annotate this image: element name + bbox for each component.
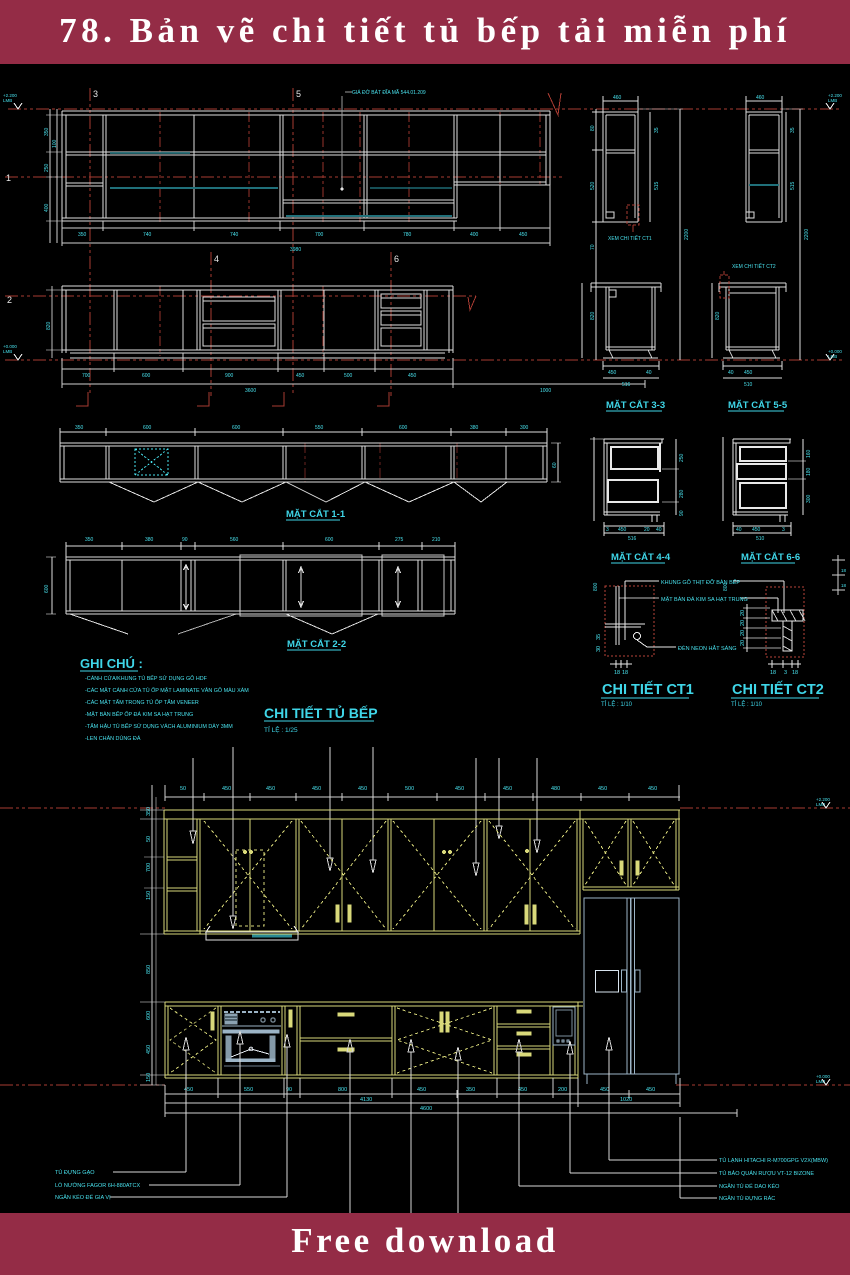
- svg-text:NGĂN TỦ ĐỂ DAO KÉO: NGĂN TỦ ĐỂ DAO KÉO: [719, 1183, 780, 1190]
- svg-text:TỈ LỆ : 1/10: TỈ LỆ : 1/10: [731, 700, 763, 708]
- svg-text:XEM CHI TIẾT CT2: XEM CHI TIẾT CT2: [732, 263, 776, 270]
- svg-text:MẶT BÀN ĐÁ KIM SA HẠT TRUNG: MẶT BÀN ĐÁ KIM SA HẠT TRUNG: [661, 596, 748, 603]
- svg-text:250: 250: [679, 453, 685, 462]
- svg-text:275: 275: [395, 537, 404, 543]
- svg-text:600: 600: [146, 1011, 152, 1020]
- svg-text:5: 5: [296, 89, 301, 99]
- svg-text:700: 700: [82, 373, 91, 379]
- svg-text:450: 450: [266, 786, 275, 792]
- svg-text:3: 3: [93, 89, 98, 99]
- svg-text:800: 800: [338, 1087, 347, 1093]
- svg-text:600: 600: [399, 425, 408, 431]
- svg-text:450: 450: [608, 370, 617, 376]
- svg-text:80: 80: [590, 125, 596, 131]
- svg-text:18: 18: [770, 670, 776, 676]
- svg-text:450: 450: [455, 786, 464, 792]
- svg-text:50: 50: [180, 786, 186, 792]
- svg-text:600: 600: [325, 537, 334, 543]
- svg-text:18: 18: [622, 670, 628, 676]
- svg-text:200: 200: [558, 1087, 567, 1093]
- svg-text:50: 50: [146, 836, 152, 842]
- svg-text:LMB: LMB: [3, 98, 12, 103]
- svg-text:MẶT CẮT 1-1: MẶT CẮT 1-1: [286, 509, 346, 520]
- svg-text:600: 600: [232, 425, 241, 431]
- svg-text:90: 90: [679, 510, 685, 516]
- svg-text:900: 900: [225, 373, 234, 379]
- svg-text:300: 300: [806, 494, 812, 503]
- svg-text:450: 450: [646, 1087, 655, 1093]
- svg-text:60: 60: [552, 462, 558, 468]
- svg-text:350: 350: [44, 127, 50, 136]
- svg-text:TỦ LẠNH HITACHI R-M700GPG V2X(: TỦ LẠNH HITACHI R-M700GPG V2X(MBW): [719, 1157, 828, 1164]
- svg-text:700: 700: [146, 863, 152, 872]
- svg-text:450: 450: [744, 370, 753, 376]
- svg-text:LMB: LMB: [3, 349, 12, 354]
- svg-text:LÒ NƯỚNG FAGOR 6H-880ATCX: LÒ NƯỚNG FAGOR 6H-880ATCX: [55, 1182, 140, 1189]
- svg-text:450: 450: [146, 1045, 152, 1054]
- svg-text:350: 350: [146, 807, 152, 816]
- svg-text:1020: 1020: [620, 1097, 632, 1103]
- svg-text:18: 18: [792, 670, 798, 676]
- svg-text:MẶT CẮT 5-5: MẶT CẮT 5-5: [728, 400, 788, 411]
- svg-text:18: 18: [614, 670, 620, 676]
- svg-text:3600: 3600: [245, 388, 256, 394]
- svg-text:-TẤM HẬU TỦ BẾP SỬ DỤNG VÁCH A: -TẤM HẬU TỦ BẾP SỬ DỤNG VÁCH ALUMINIUM D…: [85, 723, 233, 730]
- svg-text:500: 500: [405, 786, 414, 792]
- svg-text:280: 280: [679, 489, 685, 498]
- svg-text:2200: 2200: [684, 229, 690, 240]
- svg-text:460: 460: [756, 95, 765, 101]
- svg-text:820: 820: [590, 311, 596, 320]
- svg-text:GIÁ ĐỞ BÁT ĐĨA MÃ 544.01.209: GIÁ ĐỞ BÁT ĐĨA MÃ 544.01.209: [352, 89, 426, 96]
- svg-text:560: 560: [230, 537, 239, 543]
- svg-text:35: 35: [654, 127, 660, 133]
- svg-text:180: 180: [806, 467, 812, 476]
- svg-text:820: 820: [715, 311, 721, 320]
- svg-text:XEM CHI TIẾT CT1: XEM CHI TIẾT CT1: [608, 235, 652, 242]
- svg-text:20: 20: [740, 640, 746, 646]
- svg-text:2200: 2200: [804, 229, 810, 240]
- svg-text:550: 550: [315, 425, 324, 431]
- svg-text:ĐÈN NEON HẮT SÁNG: ĐÈN NEON HẮT SÁNG: [678, 644, 737, 652]
- svg-text:510: 510: [756, 536, 765, 542]
- svg-text:TỦ BẢO QUẢN RƯỢU VT-12 BIZONE: TỦ BẢO QUẢN RƯỢU VT-12 BIZONE: [719, 1170, 814, 1177]
- svg-text:40: 40: [736, 527, 742, 533]
- svg-text:160: 160: [806, 449, 812, 458]
- svg-text:MẶT CẮT 2-2: MẶT CẮT 2-2: [287, 639, 346, 650]
- svg-text:3: 3: [784, 670, 787, 676]
- svg-text:150: 150: [146, 891, 152, 900]
- svg-text:NGĂN KÉO ĐỂ GIA VỊ: NGĂN KÉO ĐỂ GIA VỊ: [55, 1194, 111, 1201]
- svg-text:400: 400: [470, 232, 479, 238]
- svg-text:NGĂN TỦ ĐỰNG RÁC: NGĂN TỦ ĐỰNG RÁC: [719, 1195, 775, 1202]
- svg-text:450: 450: [184, 1087, 193, 1093]
- svg-text:350: 350: [78, 232, 87, 238]
- svg-text:800: 800: [593, 582, 599, 591]
- svg-text:450: 450: [408, 373, 417, 379]
- svg-text:40: 40: [728, 370, 734, 376]
- svg-text:600: 600: [44, 584, 50, 593]
- svg-text:450: 450: [648, 786, 657, 792]
- svg-text:210: 210: [432, 537, 441, 543]
- svg-text:450: 450: [312, 786, 321, 792]
- svg-text:450: 450: [618, 527, 627, 533]
- svg-text:20: 20: [740, 620, 746, 626]
- svg-text:LMB: LMB: [828, 98, 837, 103]
- svg-text:515: 515: [790, 181, 796, 190]
- svg-text:20: 20: [740, 610, 746, 616]
- svg-text:20: 20: [644, 527, 650, 533]
- svg-text:20: 20: [740, 630, 746, 636]
- svg-text:600: 600: [143, 425, 152, 431]
- svg-text:3: 3: [782, 527, 785, 533]
- svg-text:6: 6: [394, 254, 399, 264]
- svg-text:460: 460: [613, 95, 622, 101]
- svg-text:450: 450: [600, 1087, 609, 1093]
- svg-text:CHI TIẾT TỦ BẾP: CHI TIẾT TỦ BẾP: [264, 704, 378, 721]
- svg-text:780: 780: [403, 232, 412, 238]
- svg-text:510: 510: [744, 382, 753, 388]
- svg-text:450: 450: [417, 1087, 426, 1093]
- svg-text:18: 18: [841, 568, 847, 573]
- svg-text:KHUNG GỖ THỊT ĐỠ BÀN BẾP: KHUNG GỖ THỊT ĐỠ BÀN BẾP: [661, 579, 740, 586]
- svg-text:4600: 4600: [420, 1106, 432, 1112]
- svg-text:-CÁC MẶT TẤM TRONG TỦ ỐP TẤM V: -CÁC MẶT TẤM TRONG TỦ ỐP TẤM VENEER: [85, 699, 199, 706]
- svg-text:40: 40: [656, 527, 662, 533]
- svg-text:TỈ LỆ : 1/10: TỈ LỆ : 1/10: [601, 700, 633, 708]
- svg-text:3: 3: [606, 527, 609, 533]
- svg-text:300: 300: [520, 425, 529, 431]
- svg-text:30: 30: [596, 646, 602, 652]
- svg-text:740: 740: [230, 232, 239, 238]
- svg-text:3980: 3980: [290, 247, 301, 253]
- svg-text:700: 700: [315, 232, 324, 238]
- svg-text:500: 500: [344, 373, 353, 379]
- svg-text:450: 450: [222, 786, 231, 792]
- svg-text:850: 850: [146, 965, 152, 974]
- svg-text:250: 250: [44, 163, 50, 172]
- svg-text:350: 350: [85, 537, 94, 543]
- svg-text:516: 516: [628, 536, 637, 542]
- svg-text:820: 820: [46, 321, 52, 330]
- svg-text:-CÁC MẶT CÁNH CỬA TỦ ỐP MẶT LA: -CÁC MẶT CÁNH CỬA TỦ ỐP MẶT LAMINATE VÂN…: [85, 687, 249, 694]
- svg-text:450: 450: [503, 786, 512, 792]
- svg-text:GHI CHÚ :: GHI CHÚ :: [80, 656, 143, 671]
- svg-text:-MẶT BÀN BẾP ỐP ĐÁ KIM SA HẠT: -MẶT BÀN BẾP ỐP ĐÁ KIM SA HẠT TRUNG: [85, 711, 193, 718]
- svg-text:450: 450: [519, 232, 528, 238]
- svg-text:-CÁNH CỬA/KHUNG TỦ BẾP SỬ DỤNG: -CÁNH CỬA/KHUNG TỦ BẾP SỬ DỤNG GỖ HDF: [85, 675, 208, 682]
- svg-text:740: 740: [143, 232, 152, 238]
- svg-text:520: 520: [590, 181, 596, 190]
- svg-text:MẶT CẮT 3-3: MẶT CẮT 3-3: [606, 400, 665, 411]
- svg-text:150: 150: [146, 1073, 152, 1082]
- svg-text:TỦ ĐỰNG GẠO: TỦ ĐỰNG GẠO: [55, 1169, 95, 1176]
- svg-text:70: 70: [590, 244, 596, 250]
- svg-text:516: 516: [622, 382, 631, 388]
- svg-text:450: 450: [296, 373, 305, 379]
- svg-text:35: 35: [596, 634, 602, 640]
- svg-text:350: 350: [75, 425, 84, 431]
- svg-text:450: 450: [752, 527, 761, 533]
- svg-text:550: 550: [244, 1087, 253, 1093]
- svg-text:480: 480: [551, 786, 560, 792]
- svg-text:100: 100: [52, 139, 58, 148]
- svg-text:1000: 1000: [540, 388, 551, 394]
- svg-text:400: 400: [44, 203, 50, 212]
- svg-text:4: 4: [214, 254, 219, 264]
- svg-text:MẶT CẮT 6-6: MẶT CẮT 6-6: [741, 552, 800, 563]
- svg-text:TỈ LỆ : 1/25: TỈ LỆ : 1/25: [264, 725, 298, 734]
- svg-text:450: 450: [598, 786, 607, 792]
- svg-text:450: 450: [358, 786, 367, 792]
- svg-text:40: 40: [646, 370, 652, 376]
- svg-text:35: 35: [790, 127, 796, 133]
- svg-text:1: 1: [6, 173, 11, 183]
- svg-text:350: 350: [466, 1087, 475, 1093]
- svg-text:380: 380: [145, 537, 154, 543]
- svg-text:4130: 4130: [360, 1097, 372, 1103]
- svg-text:MẶT CẮT 4-4: MẶT CẮT 4-4: [611, 552, 671, 563]
- svg-text:600: 600: [142, 373, 151, 379]
- svg-text:90: 90: [182, 537, 188, 543]
- svg-text:380: 380: [470, 425, 479, 431]
- svg-text:515: 515: [654, 181, 660, 190]
- svg-text:18: 18: [841, 583, 847, 588]
- svg-text:CHI TIẾT CT1: CHI TIẾT CT1: [602, 681, 694, 698]
- svg-text:2: 2: [7, 295, 12, 305]
- svg-text:CHI TIẾT CT2: CHI TIẾT CT2: [732, 681, 824, 698]
- svg-text:-LEN CHÂN DÙNG ĐÁ: -LEN CHÂN DÙNG ĐÁ: [85, 735, 141, 742]
